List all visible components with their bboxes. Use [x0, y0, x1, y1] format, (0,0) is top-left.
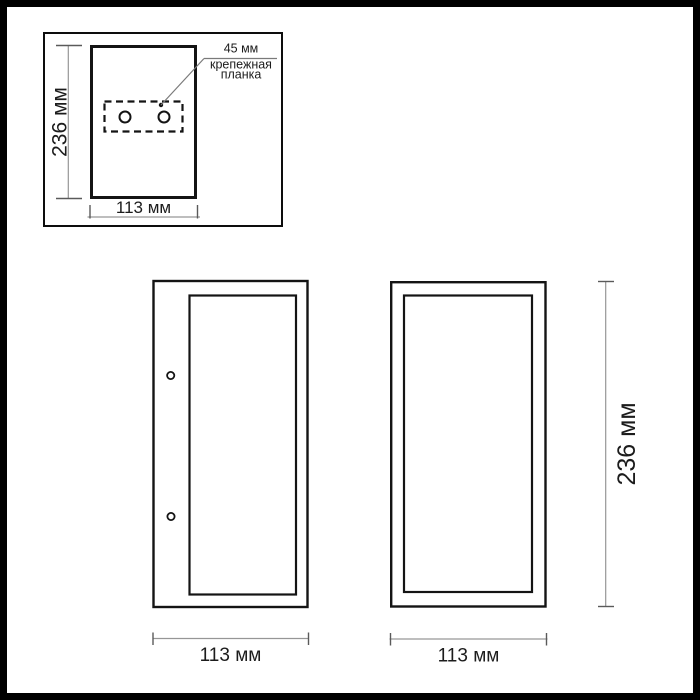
mounting-hole-left	[120, 112, 131, 123]
side-view-width-dimension: 113 мм	[153, 633, 310, 667]
front-view: 113 мм 236 мм	[390, 282, 642, 667]
mounting-hole-right	[159, 112, 170, 123]
inset-width-label: 113 мм	[116, 198, 171, 217]
front-view-height-label: 236 мм	[613, 402, 641, 485]
front-view-inner-panel	[404, 296, 532, 593]
rear-view-inset: 45 мм крепежная планка 236 мм 113 мм	[44, 33, 282, 226]
lamp-rear-outline	[92, 47, 196, 198]
front-view-height-dimension: 236 мм	[598, 282, 641, 607]
inset-height-label: 236 мм	[49, 87, 72, 157]
front-view-width-label: 113 мм	[438, 646, 500, 667]
callout-name-line2: планка	[221, 68, 262, 82]
technical-drawing-page: 45 мм крепежная планка 236 мм 113 мм	[0, 0, 700, 700]
callout-size-label: 45 мм	[224, 42, 259, 56]
dimension-drawing: 45 мм крепежная планка 236 мм 113 мм	[0, 0, 700, 700]
front-view-width-dimension: 113 мм	[390, 633, 548, 667]
side-view-inner-panel	[190, 296, 297, 595]
screw-hole-top	[167, 372, 174, 379]
screw-hole-bottom	[167, 513, 174, 520]
side-view-width-label: 113 мм	[200, 645, 262, 666]
side-view: 113 мм	[153, 281, 310, 666]
